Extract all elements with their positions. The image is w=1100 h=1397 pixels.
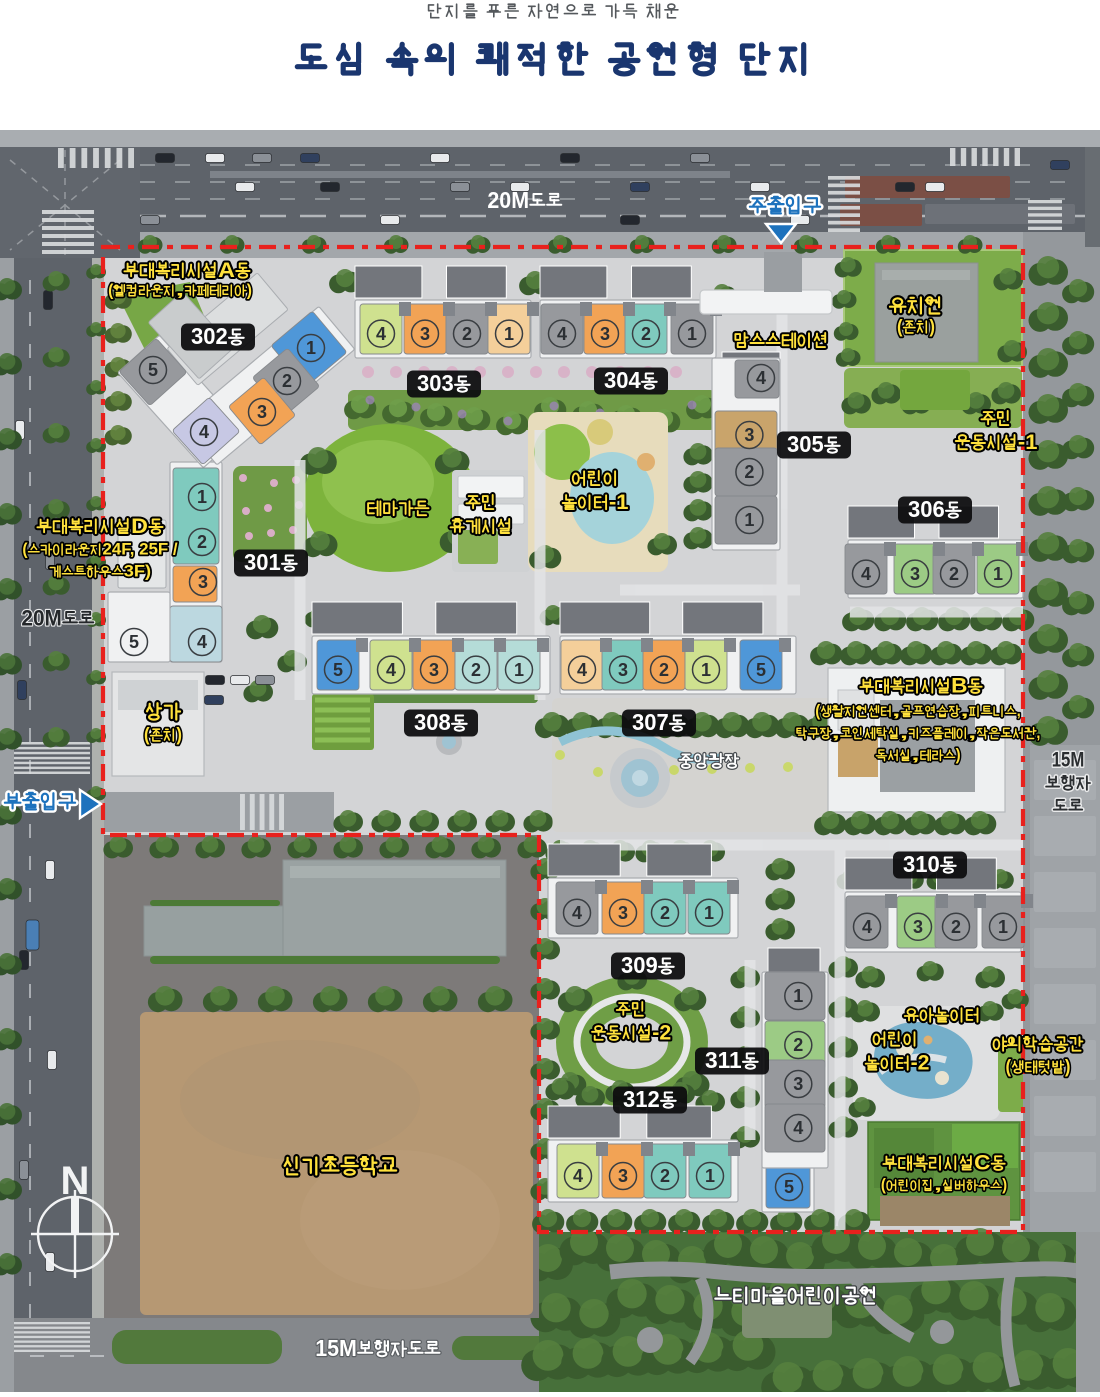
svg-text:2: 2: [949, 564, 959, 584]
svg-text:2: 2: [660, 1166, 670, 1186]
svg-text:(: (: [815, 702, 821, 720]
svg-text:): ): [1002, 1176, 1007, 1194]
svg-text:2: 2: [282, 371, 292, 391]
svg-text:1: 1: [514, 660, 524, 680]
svg-text:,: ,: [832, 724, 840, 742]
svg-text:B: B: [951, 674, 967, 697]
svg-text:311: 311: [705, 1047, 742, 1073]
svg-text:-2: -2: [911, 1051, 930, 1074]
svg-text:-1: -1: [1018, 430, 1038, 454]
svg-text:4: 4: [376, 324, 386, 344]
svg-text:A: A: [218, 258, 235, 282]
svg-text:4: 4: [386, 660, 396, 680]
svg-text:,: ,: [1036, 724, 1040, 742]
svg-text:): ): [247, 281, 252, 300]
svg-text:(: (: [897, 317, 903, 337]
svg-text:309: 309: [621, 952, 658, 978]
svg-text:305: 305: [787, 431, 824, 457]
svg-text:308: 308: [414, 709, 451, 735]
svg-text:4: 4: [557, 324, 567, 344]
svg-text:4: 4: [197, 632, 207, 652]
svg-text:15M: 15M: [315, 1335, 357, 1361]
svg-text:15M: 15M: [1052, 748, 1085, 771]
svg-text:(: (: [108, 281, 114, 300]
svg-text:2: 2: [793, 1035, 803, 1055]
svg-text:1: 1: [704, 903, 714, 923]
svg-text:): ): [1065, 1057, 1071, 1077]
svg-text:4: 4: [861, 564, 871, 584]
svg-text:1: 1: [793, 986, 803, 1006]
svg-text:2: 2: [951, 917, 961, 937]
svg-text:): ): [956, 746, 961, 764]
svg-text:5: 5: [129, 632, 139, 652]
svg-text:3: 3: [198, 572, 208, 592]
svg-text:4: 4: [756, 368, 766, 388]
svg-text:(: (: [881, 1176, 887, 1194]
svg-text:(: (: [22, 540, 28, 559]
svg-text:3: 3: [618, 660, 628, 680]
svg-text:C: C: [974, 1151, 990, 1174]
svg-text:302: 302: [191, 323, 228, 349]
svg-text:D: D: [131, 514, 148, 538]
svg-text:3: 3: [618, 1166, 628, 1186]
svg-text:,: ,: [911, 746, 919, 764]
svg-text:3: 3: [913, 917, 923, 937]
svg-text:,: ,: [934, 1176, 942, 1194]
svg-text:): ): [929, 317, 935, 337]
svg-text:3: 3: [600, 324, 610, 344]
svg-text:-2: -2: [652, 1021, 671, 1044]
svg-text:1: 1: [504, 324, 514, 344]
svg-text:,: ,: [961, 702, 969, 720]
svg-text:,: ,: [968, 724, 976, 742]
svg-text:307: 307: [632, 709, 669, 735]
svg-text:3: 3: [910, 564, 920, 584]
svg-text:4: 4: [199, 422, 209, 442]
svg-text:2: 2: [660, 903, 670, 923]
svg-text:301: 301: [244, 549, 281, 575]
svg-text:4: 4: [793, 1118, 803, 1138]
svg-text:-1: -1: [609, 490, 629, 514]
svg-text:4: 4: [862, 917, 872, 937]
svg-text:4: 4: [572, 903, 582, 923]
svg-text:(: (: [1006, 1057, 1012, 1077]
svg-text:312: 312: [623, 1086, 660, 1112]
svg-text:,: ,: [176, 281, 185, 300]
svg-text:1: 1: [197, 487, 207, 507]
svg-text:20M: 20M: [21, 605, 62, 630]
svg-text:2: 2: [744, 462, 754, 482]
svg-text:1: 1: [998, 917, 1008, 937]
svg-text:2: 2: [462, 324, 472, 344]
svg-text:24F, 25F /: 24F, 25F /: [103, 540, 178, 559]
svg-text:2: 2: [659, 660, 669, 680]
svg-text:3: 3: [420, 324, 430, 344]
svg-text:303: 303: [417, 370, 454, 396]
svg-text:3: 3: [793, 1074, 803, 1094]
svg-text:20M: 20M: [487, 187, 529, 213]
svg-text:2: 2: [641, 324, 651, 344]
svg-text:306: 306: [908, 496, 945, 522]
svg-text:,: ,: [900, 724, 908, 742]
svg-text:310: 310: [903, 851, 940, 877]
svg-text:1: 1: [705, 1166, 715, 1186]
svg-text:1: 1: [701, 660, 711, 680]
svg-text:,: ,: [892, 702, 900, 720]
svg-text:N: N: [61, 1159, 90, 1203]
svg-text:5: 5: [756, 660, 766, 680]
svg-text:4: 4: [573, 1166, 583, 1186]
svg-text:4: 4: [577, 660, 587, 680]
svg-text:2: 2: [471, 660, 481, 680]
svg-text:1: 1: [993, 564, 1003, 584]
svg-text:5: 5: [148, 360, 158, 380]
svg-text:): ): [176, 725, 182, 745]
svg-text:3: 3: [257, 402, 267, 422]
svg-text:5: 5: [784, 1177, 794, 1197]
svg-text:1: 1: [306, 338, 316, 358]
svg-text:3F): 3F): [124, 562, 151, 581]
svg-text:1: 1: [744, 510, 754, 530]
svg-text:1: 1: [687, 324, 697, 344]
svg-text:(: (: [144, 725, 150, 745]
svg-text:3: 3: [744, 425, 754, 445]
svg-text:,: ,: [1017, 702, 1021, 720]
svg-text:304: 304: [604, 367, 641, 393]
svg-text:3: 3: [429, 660, 439, 680]
svg-text:2: 2: [197, 532, 207, 552]
svg-text:5: 5: [333, 660, 343, 680]
svg-text:3: 3: [618, 903, 628, 923]
